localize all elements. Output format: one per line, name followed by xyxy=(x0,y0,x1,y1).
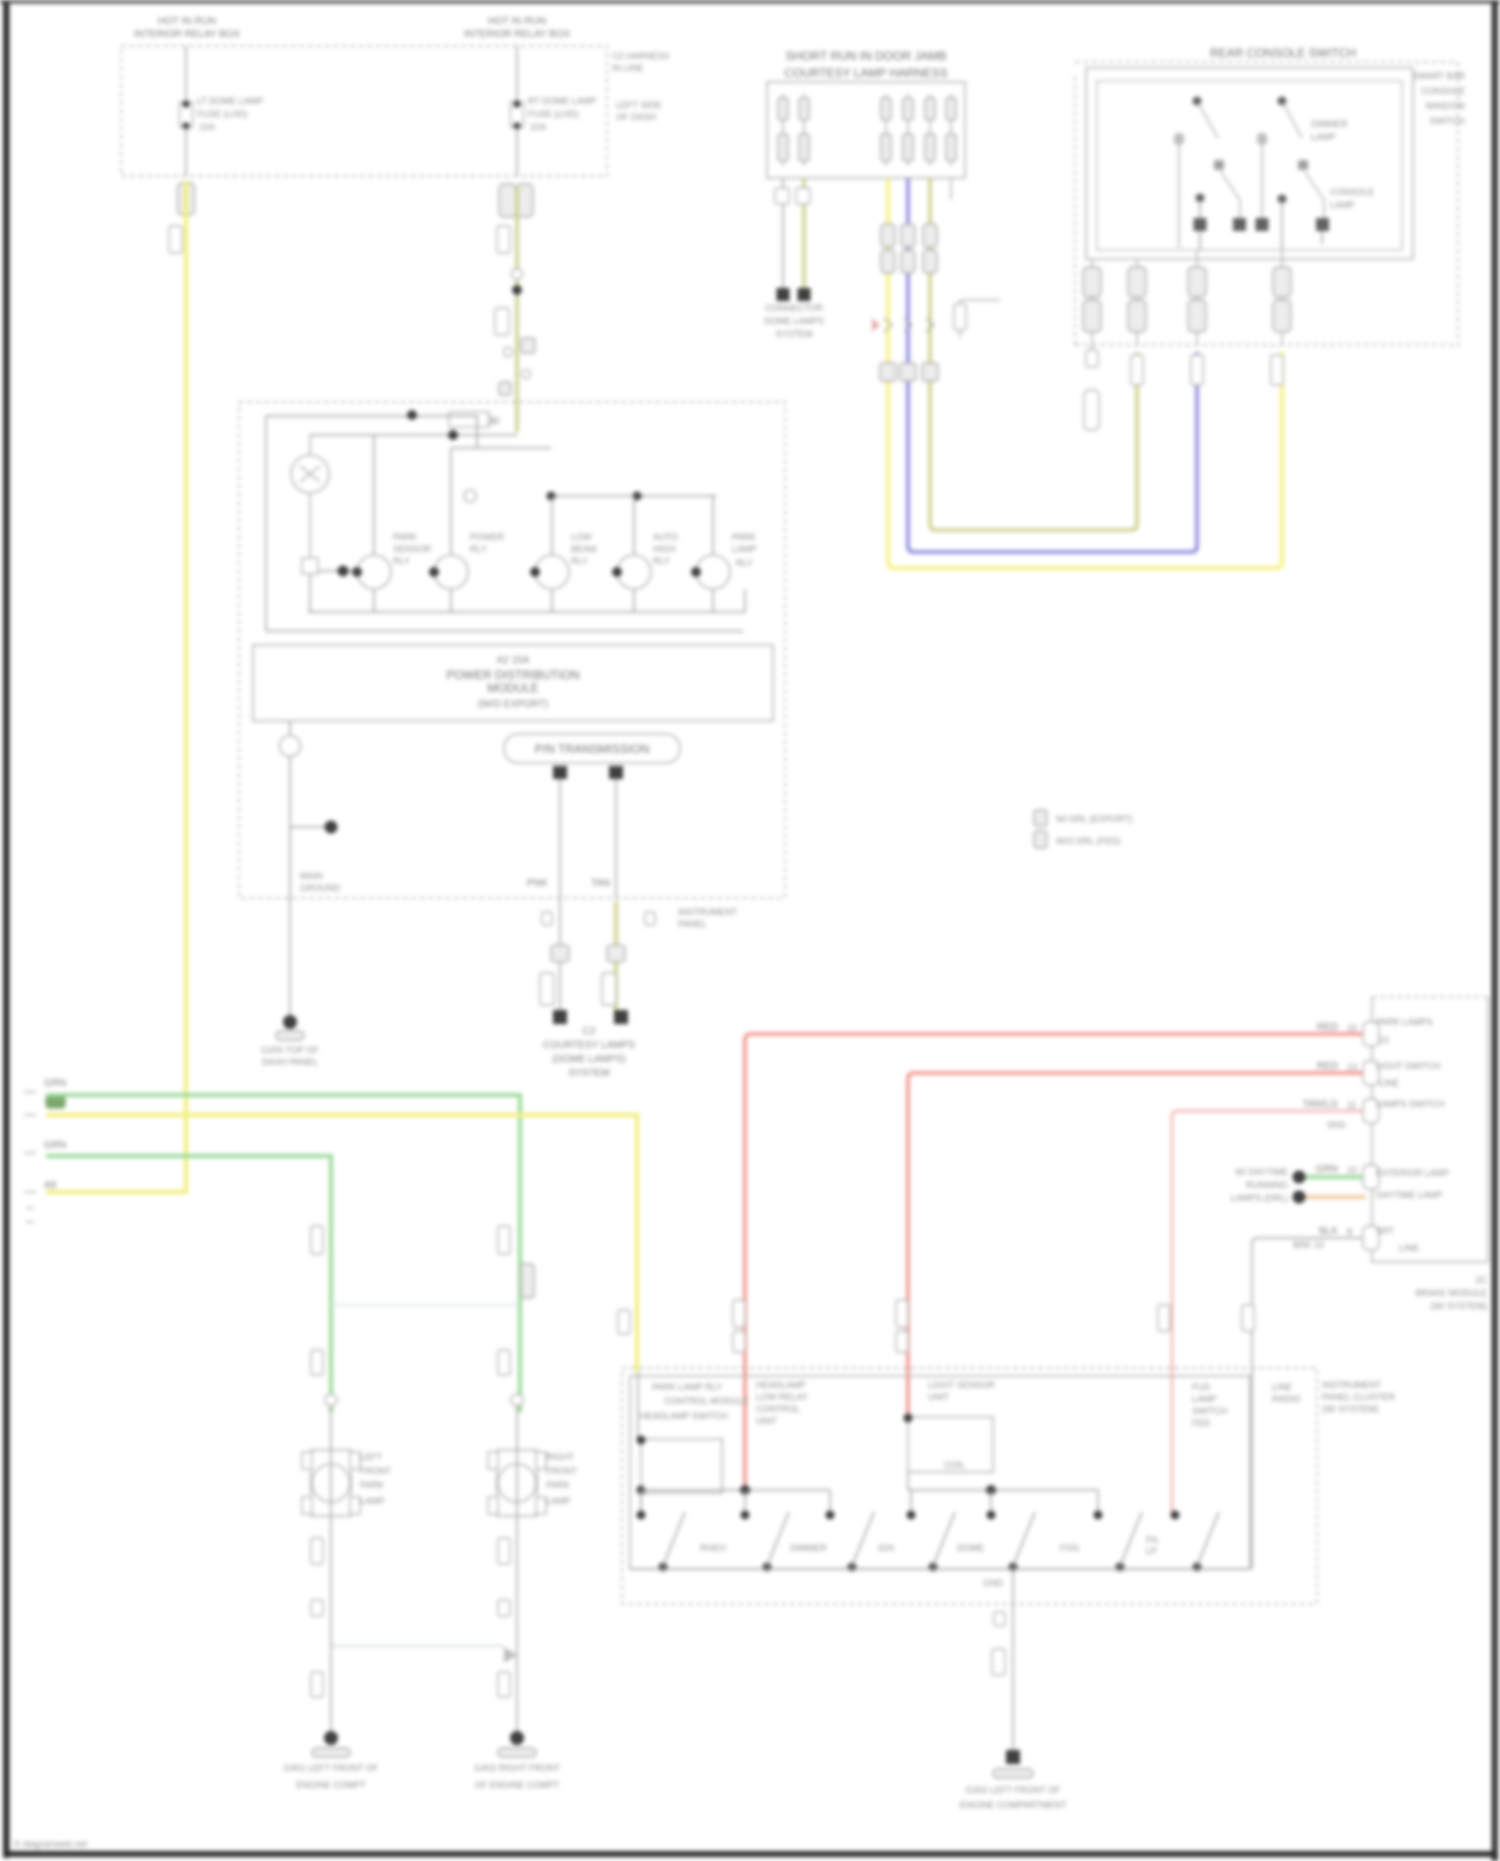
svg-text:MAIN: MAIN xyxy=(300,871,323,881)
svg-text:SYSTEM: SYSTEM xyxy=(775,329,812,339)
svg-text:SYSTEM: SYSTEM xyxy=(568,1068,609,1079)
svg-text:SHORT RUN IN DOOR JAMB: SHORT RUN IN DOOR JAMB xyxy=(786,49,947,63)
svg-text:DASH PANEL: DASH PANEL xyxy=(262,1057,318,1067)
svg-text:BRAKE MODULE: BRAKE MODULE xyxy=(1415,1288,1487,1298)
svg-text:W/O DRL (FED): W/O DRL (FED) xyxy=(1056,836,1121,846)
svg-text:PARK: PARK xyxy=(360,1480,384,1490)
svg-text:LOW RELAY: LOW RELAY xyxy=(756,1392,808,1402)
svg-text:TAN: TAN xyxy=(591,878,610,889)
svg-text:30: 30 xyxy=(488,416,500,427)
svg-text:GRN: GRN xyxy=(44,1140,66,1151)
svg-text:G401 LEFT FRONT OF: G401 LEFT FRONT OF xyxy=(284,1763,379,1773)
svg-text:RHEO: RHEO xyxy=(700,1543,726,1553)
svg-text:ENGINE COMPT: ENGINE COMPT xyxy=(296,1780,366,1790)
svg-text:LIGHT SWITCH: LIGHT SWITCH xyxy=(1376,1061,1440,1071)
svg-text:10A: 10A xyxy=(199,122,215,132)
svg-text:RT DOME LAMP: RT DOME LAMP xyxy=(528,96,596,106)
svg-text:HOT IN RUN: HOT IN RUN xyxy=(158,16,216,27)
svg-text:GND: GND xyxy=(983,1578,1004,1588)
svg-text:13: 13 xyxy=(1347,1062,1357,1072)
svg-text:ENGINE COMPARTMENT: ENGINE COMPARTMENT xyxy=(960,1800,1067,1810)
svg-text:SNS: SNS xyxy=(1327,1120,1346,1130)
svg-text:FUSE (LHD): FUSE (LHD) xyxy=(528,109,579,119)
svg-text:G402 RIGHT FRONT: G402 RIGHT FRONT xyxy=(474,1763,560,1773)
svg-text:UNIT: UNIT xyxy=(928,1392,949,1402)
svg-text:A2 15A: A2 15A xyxy=(497,655,530,666)
svg-text:LAMP: LAMP xyxy=(1192,1394,1217,1404)
svg-text:INTERIOR RELAY BOX: INTERIOR RELAY BOX xyxy=(134,29,241,40)
svg-text:DOME: DOME xyxy=(957,1543,984,1553)
svg-text:2C: 2C xyxy=(1475,1275,1487,1285)
svg-text:© diagramweb.net: © diagramweb.net xyxy=(14,1839,88,1849)
svg-text:RLY: RLY xyxy=(393,556,410,566)
svg-text:DOME LAMPS: DOME LAMPS xyxy=(764,316,824,326)
svg-text:BLK: BLK xyxy=(1319,1226,1338,1237)
svg-text:LINE: LINE xyxy=(1399,1243,1419,1253)
svg-text:AUTO: AUTO xyxy=(653,532,678,542)
svg-text:LOW: LOW xyxy=(571,532,592,542)
svg-text:RLY: RLY xyxy=(571,556,588,566)
svg-text:HEADLAMP SWITCH: HEADLAMP SWITCH xyxy=(640,1411,727,1421)
svg-text:A9: A9 xyxy=(44,1180,57,1191)
svg-text:SMART BAR: SMART BAR xyxy=(1413,71,1466,81)
svg-text:P/L: P/L xyxy=(1146,1535,1160,1545)
svg-text:TAN/LG: TAN/LG xyxy=(1303,1099,1339,1110)
svg-text:FED: FED xyxy=(1192,1418,1211,1428)
svg-text:PNK: PNK xyxy=(527,878,548,889)
svg-text:REAR CONSOLE SWITCH: REAR CONSOLE SWITCH xyxy=(1210,46,1356,60)
svg-text:W/ DRL (EXPORT): W/ DRL (EXPORT) xyxy=(1056,814,1133,824)
svg-text:BEAM: BEAM xyxy=(571,544,597,554)
svg-text:PARK: PARK xyxy=(732,532,756,542)
svg-text:LP: LP xyxy=(1146,1546,1157,1556)
svg-text:IN LINE: IN LINE xyxy=(612,63,644,73)
svg-text:W/ DAYTIME: W/ DAYTIME xyxy=(1235,1167,1288,1177)
svg-text:10A: 10A xyxy=(530,122,546,132)
svg-text:HEADLAMP: HEADLAMP xyxy=(756,1380,806,1390)
svg-text:OF DASH: OF DASH xyxy=(616,112,656,122)
svg-text:COURTESY LAMP HARNESS: COURTESY LAMP HARNESS xyxy=(784,66,947,80)
svg-text:DAYTIME LAMP: DAYTIME LAMP xyxy=(1376,1190,1442,1200)
svg-text:8: 8 xyxy=(1347,1227,1352,1237)
svg-text:G302 LEFT FRONT OF: G302 LEFT FRONT OF xyxy=(966,1785,1061,1795)
svg-text:FUS: FUS xyxy=(1192,1382,1210,1392)
svg-text:GRN: GRN xyxy=(1316,1164,1338,1175)
svg-text:PANEL CLUSTER: PANEL CLUSTER xyxy=(1322,1392,1396,1402)
svg-text:15: 15 xyxy=(1347,1023,1357,1033)
svg-text:CONTROL: CONTROL xyxy=(756,1404,800,1414)
svg-text:11: 11 xyxy=(1347,1100,1356,1110)
svg-text:RUNNING: RUNNING xyxy=(1246,1180,1288,1190)
svg-text:MODULE: MODULE xyxy=(487,681,538,695)
svg-text:(DOME LAMPS): (DOME LAMPS) xyxy=(552,1054,625,1065)
svg-text:LAMP: LAMP xyxy=(1311,132,1336,142)
svg-text:LEFT: LEFT xyxy=(360,1452,383,1462)
svg-text:FUSE (LHD): FUSE (LHD) xyxy=(197,109,248,119)
svg-text:RADIO: RADIO xyxy=(1272,1394,1301,1404)
svg-text:POWER DISTRIBUTION: POWER DISTRIBUTION xyxy=(446,668,579,682)
svg-text:C2: C2 xyxy=(583,1026,596,1037)
svg-text:CONSOLE: CONSOLE xyxy=(1421,86,1465,96)
svg-text:FOG: FOG xyxy=(1060,1543,1080,1553)
svg-text:PARK LAMP RLY: PARK LAMP RLY xyxy=(652,1382,722,1392)
svg-text:LAMPS (DRL): LAMPS (DRL) xyxy=(1231,1193,1288,1203)
svg-text:IGN: IGN xyxy=(878,1543,894,1553)
svg-text:LEFT SIDE: LEFT SIDE xyxy=(616,100,661,110)
svg-text:RED: RED xyxy=(1317,1061,1338,1072)
svg-text:DIMMER: DIMMER xyxy=(1311,119,1348,129)
svg-text:PARK: PARK xyxy=(546,1480,570,1490)
svg-text:P/N TRANSMISSION: P/N TRANSMISSION xyxy=(535,742,649,756)
svg-text:(W/O EXPORT): (W/O EXPORT) xyxy=(478,699,548,710)
svg-text:BRK 10: BRK 10 xyxy=(1293,1240,1324,1250)
svg-text:LAMP: LAMP xyxy=(732,544,757,554)
svg-text:CONSOLE: CONSOLE xyxy=(1330,187,1374,197)
svg-text:FRONT: FRONT xyxy=(546,1466,577,1476)
svg-text:FRONT: FRONT xyxy=(360,1466,391,1476)
svg-text:G200 TOP OF: G200 TOP OF xyxy=(261,1045,319,1055)
svg-text:SWITCH: SWITCH xyxy=(1192,1406,1228,1416)
svg-text:GROUND: GROUND xyxy=(300,883,340,893)
svg-text:LINE: LINE xyxy=(1379,1078,1399,1088)
svg-text:RIGHT: RIGHT xyxy=(546,1452,575,1462)
svg-text:COIL: COIL xyxy=(944,1460,965,1470)
svg-text:CONTROL MODULE: CONTROL MODULE xyxy=(664,1396,749,1406)
svg-text:LAMPS SWITCH: LAMPS SWITCH xyxy=(1376,1099,1445,1109)
svg-text:PARK LAMPS: PARK LAMPS xyxy=(1376,1017,1433,1027)
svg-text:UNIT: UNIT xyxy=(756,1416,777,1426)
svg-text:RLY: RLY xyxy=(470,544,487,554)
svg-text:LAMP: LAMP xyxy=(360,1496,385,1506)
svg-text:12: 12 xyxy=(1379,1035,1389,1045)
svg-text:INSTRUMENT: INSTRUMENT xyxy=(1322,1380,1381,1390)
svg-text:POWER: POWER xyxy=(470,532,505,542)
svg-text:SENSOR: SENSOR xyxy=(393,544,432,554)
svg-text:PARK: PARK xyxy=(393,532,417,542)
svg-text:GRN: GRN xyxy=(44,1078,66,1089)
svg-text:OF ENGINE COMPT: OF ENGINE COMPT xyxy=(475,1780,560,1790)
svg-text:SRT: SRT xyxy=(1376,1226,1394,1236)
svg-text:HOT IN RUN: HOT IN RUN xyxy=(488,16,546,27)
svg-text:SWITCH: SWITCH xyxy=(1430,116,1466,126)
svg-text:C2 HARNESS: C2 HARNESS xyxy=(612,51,670,61)
svg-text:LAMP: LAMP xyxy=(546,1496,571,1506)
svg-text:LINE: LINE xyxy=(1272,1382,1292,1392)
svg-text:DIMMER: DIMMER xyxy=(790,1543,827,1553)
svg-text:EXTERIOR LAMP: EXTERIOR LAMP xyxy=(1376,1168,1449,1178)
svg-text:PANEL: PANEL xyxy=(678,919,707,929)
svg-text:LT DOME LAMP: LT DOME LAMP xyxy=(197,96,263,106)
svg-text:INSTRUMENT: INSTRUMENT xyxy=(678,907,737,917)
svg-text:LIGHT SENSOR: LIGHT SENSOR xyxy=(928,1380,995,1390)
svg-text:(W/ SYSTEM): (W/ SYSTEM) xyxy=(1322,1404,1379,1414)
svg-text:RLY: RLY xyxy=(736,558,753,568)
svg-text:LAMP: LAMP xyxy=(1330,200,1355,210)
svg-text:COURTESY LAMPS: COURTESY LAMPS xyxy=(543,1040,635,1051)
svg-text:HIGH: HIGH xyxy=(653,544,676,554)
svg-text:WINDOW: WINDOW xyxy=(1426,101,1466,111)
svg-text:10: 10 xyxy=(1347,1165,1357,1175)
svg-text:(W/ SYSTEM): (W/ SYSTEM) xyxy=(1431,1301,1488,1311)
svg-text:INTERIOR RELAY BOX: INTERIOR RELAY BOX xyxy=(464,29,571,40)
svg-text:RLY: RLY xyxy=(653,556,670,566)
svg-text:RED: RED xyxy=(1317,1022,1338,1033)
svg-text:CONNECTOR: CONNECTOR xyxy=(765,303,823,313)
